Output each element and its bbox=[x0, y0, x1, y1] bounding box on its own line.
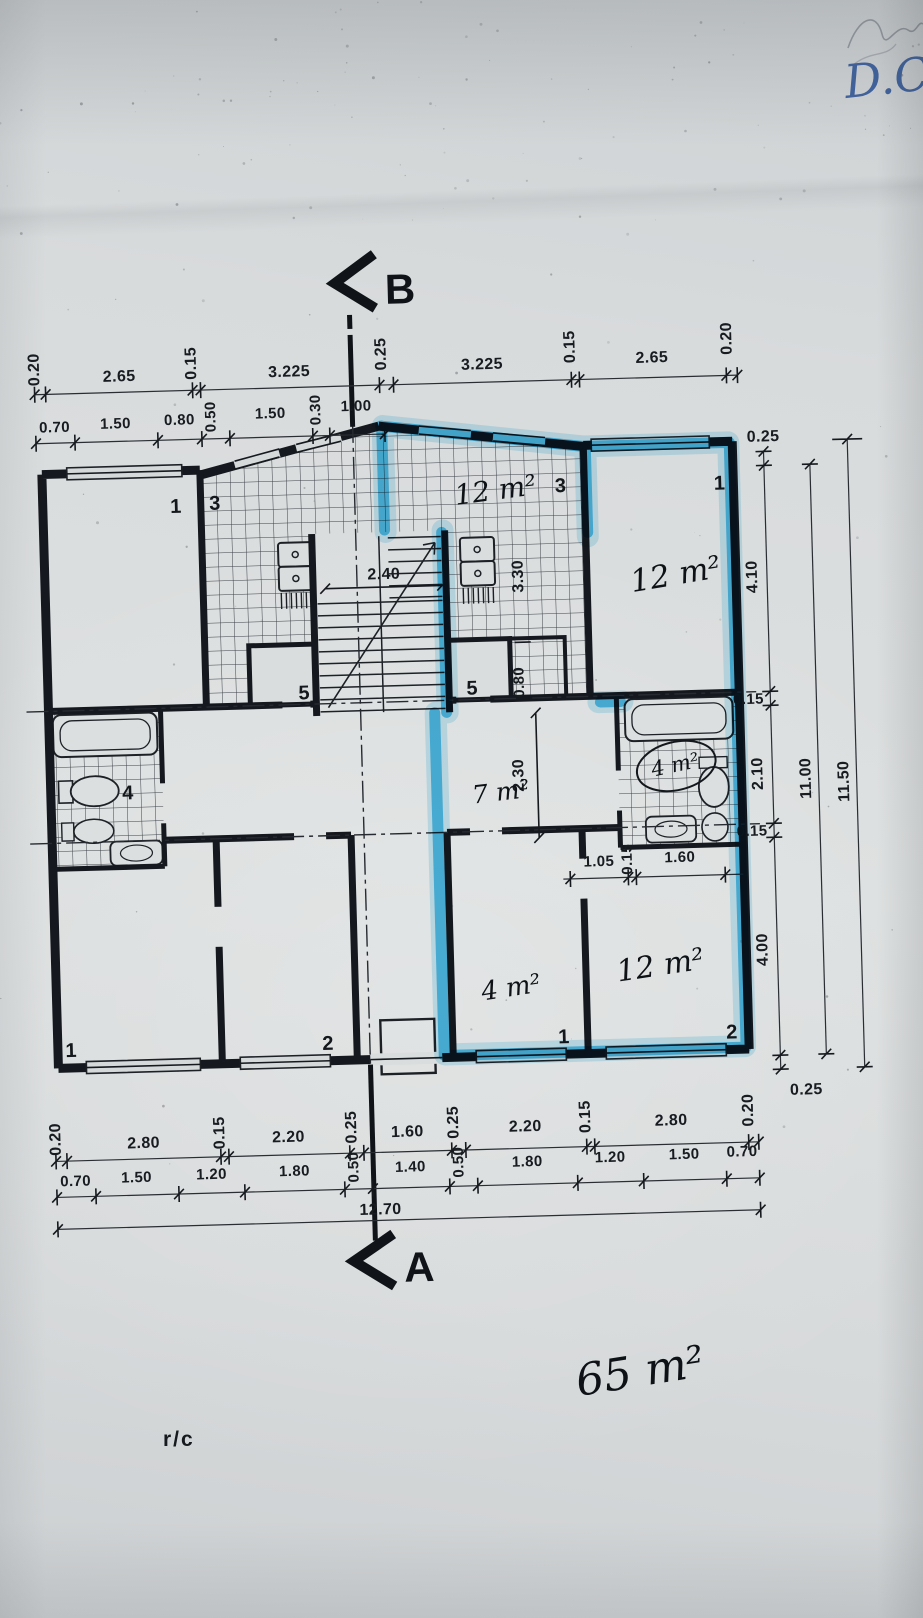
dim-label: 1.40 bbox=[395, 1158, 426, 1176]
dim-label: 0.70 bbox=[39, 419, 70, 437]
floor-plan-drawing: D.C bbox=[0, 0, 923, 1618]
dim-label: 0.15 bbox=[561, 330, 579, 363]
dim-label: 2.80 bbox=[655, 1112, 688, 1130]
dim-label: 3.30 bbox=[509, 560, 527, 593]
dim-label: 0.15 bbox=[577, 1100, 595, 1133]
staircase bbox=[316, 534, 446, 713]
dim-label: 0.15 bbox=[618, 844, 636, 875]
bidet-back bbox=[62, 823, 74, 841]
plan-group: B A 0.20 2.65 0.15 3.225 0.25 3.225 0.15… bbox=[14, 241, 886, 1301]
dim-label: 2.65 bbox=[635, 349, 668, 367]
dim-label: 0.50 bbox=[202, 401, 220, 432]
dim-label: 1.80 bbox=[512, 1153, 543, 1171]
entry-vestibule bbox=[380, 1019, 435, 1074]
area-note-top-room: 12 m² bbox=[628, 549, 724, 600]
dim-label: 1.80 bbox=[279, 1162, 310, 1180]
dim-label: 0.25 bbox=[343, 1111, 361, 1144]
room-number: 3 bbox=[209, 493, 221, 515]
dim-label: 2.80 bbox=[127, 1135, 160, 1153]
room-number: 2 bbox=[322, 1033, 334, 1055]
pen-initials-note: D.C bbox=[841, 46, 923, 109]
section-letter: B bbox=[384, 265, 416, 313]
pencil-scribble bbox=[848, 20, 923, 48]
dim-label: 0.20 bbox=[25, 353, 43, 386]
toilet bbox=[698, 767, 729, 808]
dim-label: 1.50 bbox=[668, 1145, 699, 1163]
dim-label: 2.10 bbox=[749, 757, 767, 790]
dim-label: 0.15 bbox=[182, 347, 200, 380]
dim-label: 0.70 bbox=[726, 1143, 757, 1161]
section-letter: A bbox=[403, 1243, 435, 1291]
dim-label: 2.65 bbox=[103, 368, 136, 386]
dim-label: 0.15 bbox=[211, 1116, 229, 1149]
dim-label: 1.60 bbox=[664, 848, 695, 866]
dim-label: 0.80 bbox=[164, 411, 195, 429]
toilet bbox=[70, 776, 119, 807]
room-number: 5 bbox=[298, 682, 310, 704]
room-number: 1 bbox=[65, 1040, 77, 1062]
section-arrow-icon bbox=[353, 1234, 394, 1287]
dim-label: 11.50 bbox=[835, 760, 853, 802]
dim-label: 0.80 bbox=[510, 667, 528, 698]
dim-label: 0.50 bbox=[345, 1151, 363, 1182]
floor-plan-photo: D.C bbox=[0, 0, 923, 1618]
corner-notes: D.C bbox=[841, 20, 923, 109]
room-number: 5 bbox=[466, 677, 478, 699]
dim-label: 1.50 bbox=[100, 415, 131, 433]
room-number: 1 bbox=[170, 496, 182, 518]
room-number: 4 bbox=[122, 782, 135, 804]
dim-label: 0.20 bbox=[739, 1093, 757, 1126]
dim-label: 0.20 bbox=[47, 1123, 65, 1156]
dim-label: 0.25 bbox=[372, 337, 390, 370]
area-note-small-room: 4 m² bbox=[478, 969, 543, 1008]
dim-label: 4.10 bbox=[744, 560, 762, 593]
dim-label: 2.20 bbox=[272, 1128, 305, 1146]
dim-label: 11.00 bbox=[797, 758, 815, 800]
dim-label: 3.225 bbox=[461, 356, 504, 374]
dim-label: 0.20 bbox=[718, 322, 736, 355]
area-note-bottom-room: 12 m² bbox=[614, 942, 706, 990]
bidet bbox=[74, 819, 115, 844]
bottom-band-walls bbox=[216, 829, 588, 1064]
room-number: 3 bbox=[555, 475, 567, 497]
area-note-hall: 7 m² bbox=[471, 774, 532, 809]
dim-label: 1.50 bbox=[255, 405, 286, 423]
dim-label: 3.225 bbox=[268, 363, 311, 381]
dim-label: 1.20 bbox=[595, 1149, 626, 1167]
dim-label: 0.30 bbox=[307, 394, 325, 425]
dim-label: 1.05 bbox=[583, 853, 614, 871]
dim-label: 0.70 bbox=[60, 1172, 91, 1190]
dim-label: 1.00 bbox=[340, 397, 371, 415]
bidet bbox=[702, 813, 729, 842]
dim-label: 0.50 bbox=[450, 1147, 468, 1178]
dim-label: 1.20 bbox=[196, 1166, 227, 1184]
dim-label: 2.40 bbox=[367, 566, 400, 584]
sink bbox=[110, 840, 163, 865]
dim-label: 12.70 bbox=[359, 1201, 402, 1219]
dim-label: 0.25 bbox=[790, 1081, 823, 1099]
section-arrow-icon bbox=[334, 254, 375, 309]
sink bbox=[646, 815, 697, 842]
dim-label: 0.25 bbox=[746, 428, 779, 446]
dim-label: 0.25 bbox=[445, 1106, 463, 1139]
floor-level-label: r/c bbox=[163, 1428, 195, 1451]
dim-label: 1.50 bbox=[121, 1169, 152, 1187]
dim-label: 4.00 bbox=[754, 933, 772, 966]
total-area-note: 65 m² bbox=[572, 1336, 708, 1407]
dim-label: 2.20 bbox=[509, 1118, 542, 1136]
dim-label: 1.60 bbox=[391, 1123, 424, 1141]
